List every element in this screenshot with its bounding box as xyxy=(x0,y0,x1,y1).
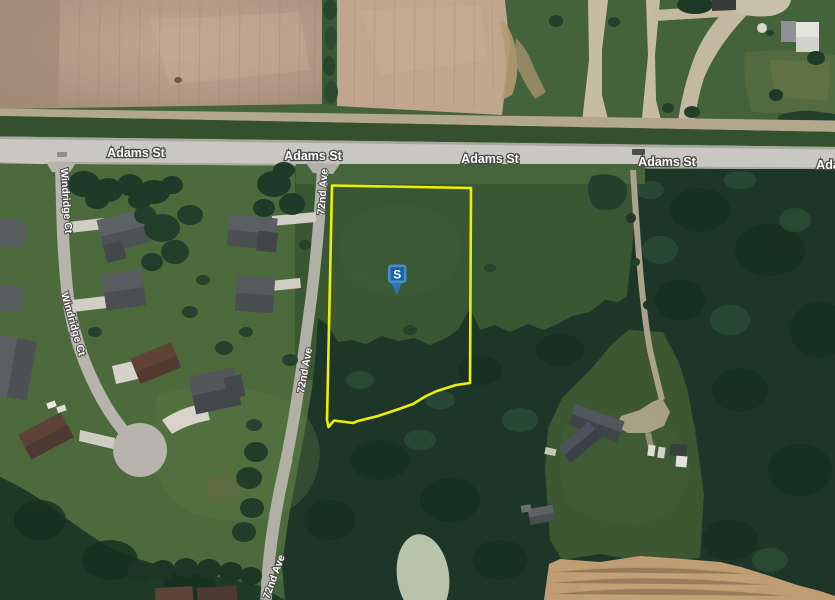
svg-text:Adams St: Adams St xyxy=(107,146,165,160)
svg-text:Adams St: Adams St xyxy=(284,149,342,163)
svg-text:Adams St: Adams St xyxy=(816,158,835,172)
svg-text:Adams St: Adams St xyxy=(461,152,519,166)
svg-text:Adams St: Adams St xyxy=(638,155,696,169)
svg-text:S: S xyxy=(393,268,401,282)
